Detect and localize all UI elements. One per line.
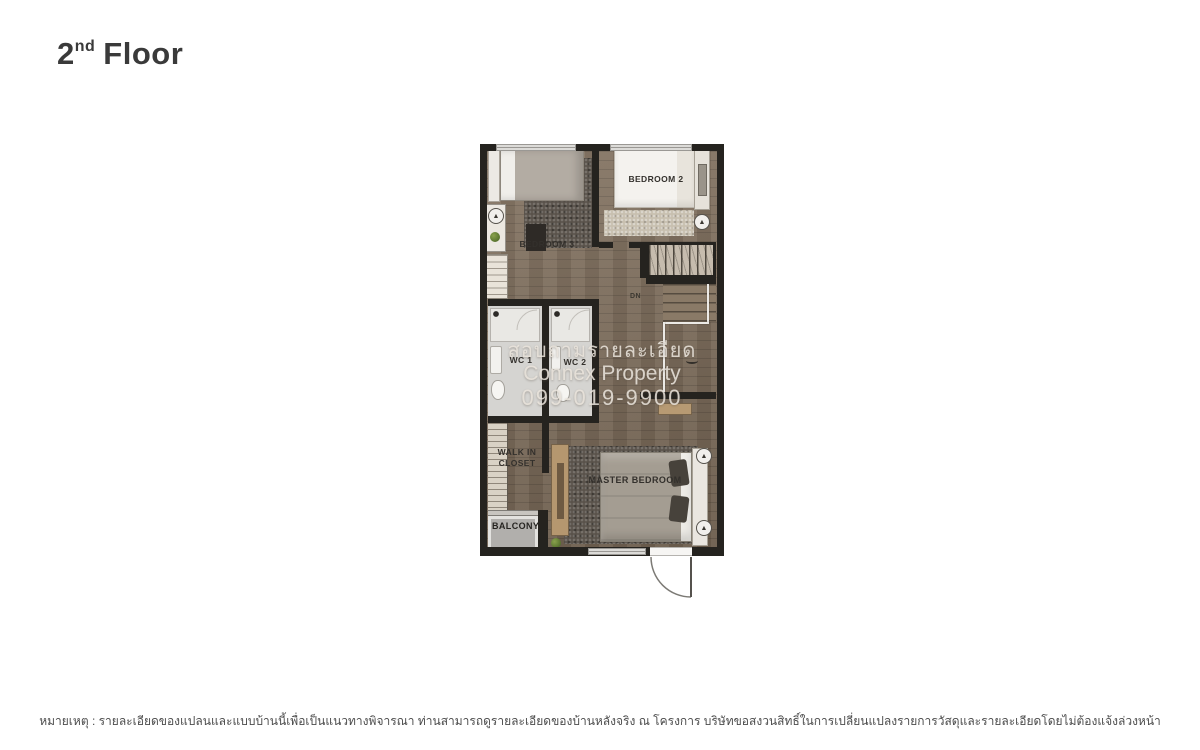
door-swing-icon <box>568 309 590 331</box>
page-title: 2ndFloor <box>57 36 183 72</box>
bedroom3-bed <box>500 149 584 201</box>
stairs-upper-flight <box>646 242 716 278</box>
ac-unit-icon: ▲ <box>696 520 712 536</box>
walk-in-line2: CLOSET <box>488 458 546 469</box>
master-pillow <box>668 495 689 523</box>
walk-in-line1: WALK IN <box>488 447 546 458</box>
window <box>610 144 692 151</box>
room-label-walk-in-closet: WALK IN CLOSET <box>488 447 546 469</box>
wall <box>538 510 548 556</box>
bedroom2-rug <box>604 210 694 236</box>
plant-icon <box>490 232 500 242</box>
door-opening <box>650 547 692 556</box>
ac-unit-icon: ▲ <box>696 448 712 464</box>
wall <box>646 278 716 284</box>
watermark-line2: Connex Property <box>480 362 724 386</box>
title-ordinal: nd <box>75 38 96 55</box>
title-word: Floor <box>103 36 183 71</box>
wall <box>488 416 599 423</box>
bedroom3-headboard <box>488 148 500 202</box>
disclaimer-text: หมายเหตุ : รายละเอียดของแปลนและแบบบ้านนี… <box>0 712 1200 731</box>
bedroom3-drawers <box>486 254 508 299</box>
title-number: 2 <box>57 36 75 71</box>
door-swing-icon <box>650 556 692 598</box>
window <box>588 548 646 555</box>
watermark: สอบถามรายละเอียด Connex Property 099-019… <box>480 340 724 411</box>
wall <box>629 242 640 248</box>
bedroom2-console <box>698 164 707 196</box>
stair-railing <box>663 322 709 324</box>
stair-railing <box>707 282 709 322</box>
door-swing-icon <box>516 309 538 331</box>
ac-unit-icon: ▲ <box>488 208 504 224</box>
floor-plan: ▲ ▲ ▲ ▲ <box>480 144 724 556</box>
master-dresser <box>551 444 569 536</box>
master-dresser-slot <box>557 463 564 519</box>
room-label-bedroom3: BEDROOM 3 <box>508 239 586 250</box>
room-label-master-bedroom: MASTER BEDROOM <box>572 475 698 486</box>
stairs-down-label: DN <box>630 291 650 302</box>
wall <box>599 242 613 248</box>
room-label-bedroom2: BEDROOM 2 <box>614 174 698 185</box>
room-label-balcony: BALCONY <box>492 521 536 532</box>
wall <box>640 242 646 278</box>
wall <box>488 299 599 306</box>
watermark-line3: 099-019-9900 <box>480 386 724 411</box>
ac-unit-icon: ▲ <box>694 214 710 230</box>
wall <box>592 151 599 247</box>
watermark-line1: สอบถามรายละเอียด <box>480 340 724 362</box>
window <box>496 144 576 151</box>
